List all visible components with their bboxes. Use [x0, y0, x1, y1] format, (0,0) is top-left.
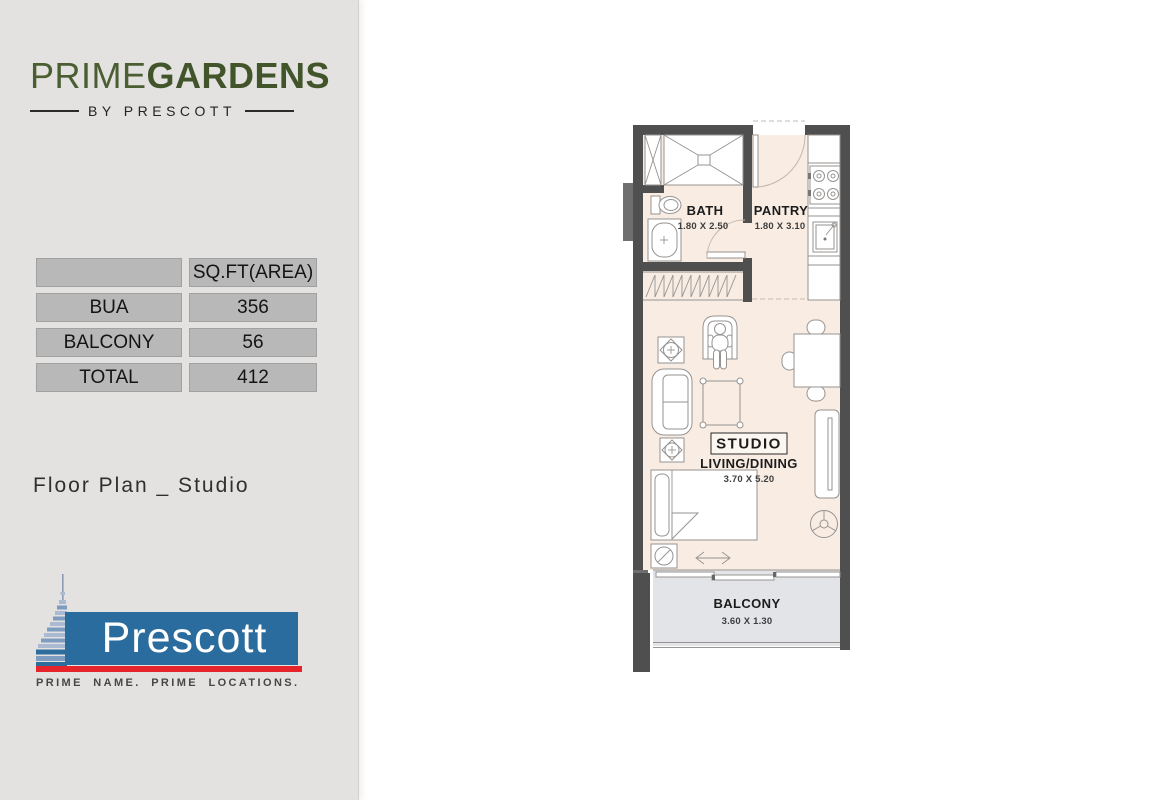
bathtub-icon	[648, 219, 681, 261]
prescott-wordmark: Prescott	[96, 617, 268, 660]
sofa-icon	[652, 369, 692, 435]
prescott-logo: Prescott PRIME NAME. PRIME LOCATIONS.	[36, 572, 304, 694]
floor-plan-brochure: { "theme": { "page_bg": "#ffffff", "side…	[0, 0, 1161, 800]
studio-label: STUDIO	[716, 436, 782, 453]
area-row-value: 56	[189, 328, 317, 357]
plant-icon	[660, 438, 684, 462]
balcony-dims: 3.60 X 1.30	[722, 616, 773, 627]
area-row-value: 356	[189, 293, 317, 322]
info-sidebar: PRIMEGARDENS BY PRESCOTT SQ.FT(AREA) BUA…	[0, 0, 359, 800]
red-underline	[36, 666, 302, 672]
brand-prime: PRIME	[30, 55, 147, 96]
balcony-label: BALCONY	[713, 596, 780, 611]
living-dining-label: LIVING/DINING	[700, 456, 798, 471]
byline-text: BY PRESCOTT	[88, 103, 236, 119]
plant-icon	[658, 337, 684, 363]
pantry-dims: 1.80 X 3.10	[755, 221, 806, 232]
bath-label: BATH	[687, 203, 724, 218]
studio-dims: 3.70 X 5.20	[724, 474, 775, 485]
byline-rule-left	[30, 110, 79, 112]
bath-dims: 1.80 X 2.50	[678, 221, 729, 232]
area-table-header: SQ.FT(AREA)	[189, 258, 317, 287]
byline-rule-right	[245, 110, 294, 112]
plan-caption: Floor Plan _ Studio	[33, 474, 250, 498]
area-table: SQ.FT(AREA) BUA 356 BALCONY 56 TOTAL 412	[36, 258, 317, 392]
prescott-wordmark-box: Prescott	[65, 612, 298, 665]
brand-gardens: GARDENS	[147, 55, 331, 96]
area-row-label: BALCONY	[36, 328, 182, 357]
nightstand-icon	[651, 544, 677, 568]
area-row-value: 412	[189, 363, 317, 392]
coffee-table-icon	[700, 378, 743, 428]
shower-icon	[645, 135, 743, 185]
toilet-icon	[651, 196, 681, 214]
brand-name: PRIMEGARDENS	[30, 58, 300, 94]
balcony-pillar	[633, 573, 650, 672]
floor-plan: BATH 1.80 X 2.50 PANTRY 1.80 X 3.10 STUD…	[608, 113, 868, 713]
brand-byline: BY PRESCOTT	[30, 103, 294, 119]
prescott-tagline: PRIME NAME. PRIME LOCATIONS.	[36, 677, 304, 689]
tv-unit-icon	[815, 410, 839, 498]
pantry-label: PANTRY	[754, 203, 808, 218]
prime-gardens-logo: PRIMEGARDENS BY PRESCOTT	[30, 58, 300, 119]
bath-door-leaf	[707, 252, 745, 258]
entry-door-leaf	[753, 135, 758, 187]
area-table-header-empty	[36, 258, 182, 287]
kitchen-counter	[808, 135, 840, 300]
area-row-label: BUA	[36, 293, 182, 322]
area-row-label: TOTAL	[36, 363, 182, 392]
